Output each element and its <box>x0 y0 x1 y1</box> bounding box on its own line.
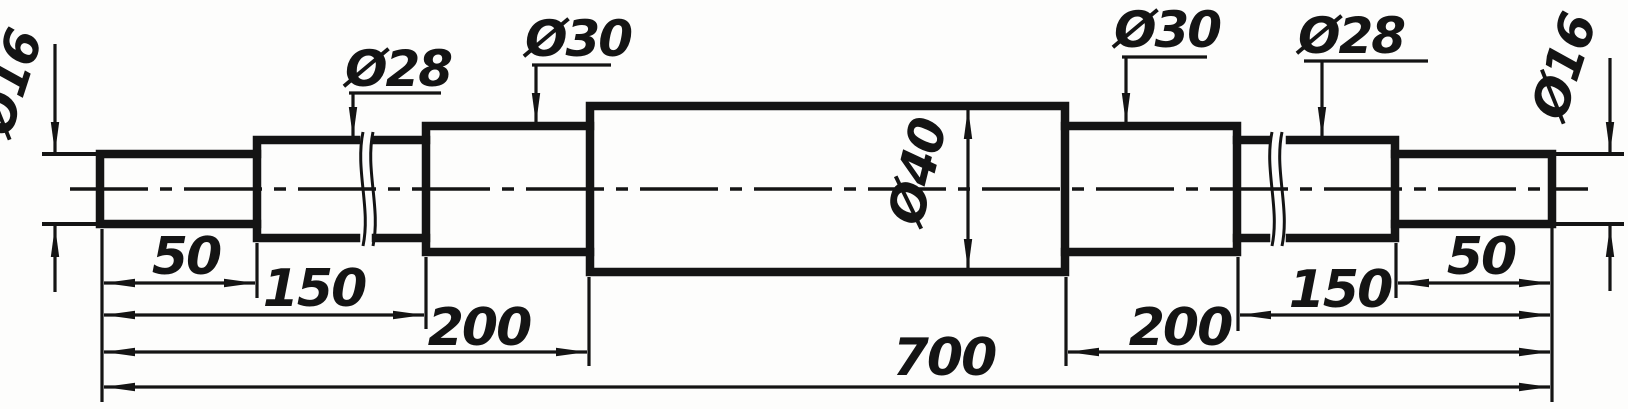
label-d30-left: Ø30 <box>522 10 632 68</box>
shaft-drawing-svg: Ø16 Ø28 Ø30 Ø40 Ø30 Ø28 Ø16 50 150 200 7… <box>0 0 1628 409</box>
label-d16-left: Ø16 <box>0 22 54 145</box>
dimension-labels: Ø16 Ø28 Ø30 Ø40 Ø30 Ø28 Ø16 50 150 200 7… <box>0 1 1608 388</box>
label-d30-right: Ø30 <box>1111 1 1221 59</box>
label-d28-right: Ø28 <box>1295 7 1404 65</box>
label-d16-right: Ø16 <box>1519 6 1608 129</box>
label-50-right: 50 <box>1447 227 1516 287</box>
diameter-dimension-lines <box>55 44 1610 292</box>
label-d40-mid: Ø40 <box>876 112 959 233</box>
label-150-right: 150 <box>1289 260 1392 320</box>
label-700-total: 700 <box>893 328 996 388</box>
label-50-left: 50 <box>152 227 221 287</box>
label-150-left: 150 <box>263 259 366 319</box>
label-200-right: 200 <box>1129 298 1232 358</box>
label-200-left: 200 <box>428 298 531 358</box>
label-d28-left: Ø28 <box>342 40 451 98</box>
shaft-drawing-canvas: Ø16 Ø28 Ø30 Ø40 Ø30 Ø28 Ø16 50 150 200 7… <box>0 0 1628 409</box>
